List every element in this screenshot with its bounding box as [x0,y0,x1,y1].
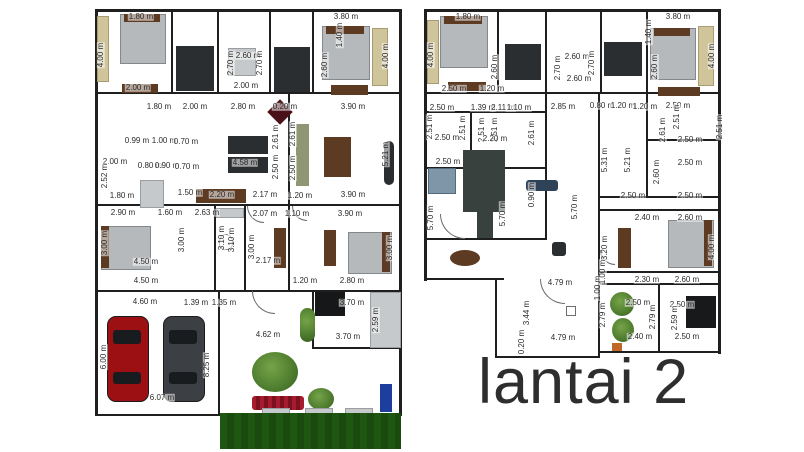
dimension-label: 2.50 m [677,136,703,144]
dimension-label: 4.00 m [708,43,716,69]
dimension-label: 4.50 m [133,277,159,285]
dimension-label: 1.40 m [336,22,344,48]
wall [545,92,547,240]
dimension-label: 2.50 m [677,159,703,167]
dimension-label: 5.70 m [571,194,579,220]
wall [658,283,660,353]
dimension-label: 3.70 m [339,299,365,307]
car-window [169,372,197,384]
car-window [169,330,197,344]
dimension-label: 4.00 m [427,42,435,68]
kitchen-appliance [228,136,268,154]
dimension-label: 1.20 m [287,192,313,200]
dimension-label: 2.20 m [482,135,508,143]
dimension-label: 2.80 m [339,277,365,285]
wall [218,290,220,416]
dimension-label: 1.60 m [157,209,183,217]
car-red [107,316,149,402]
dimension-label: 2.60 m [651,54,659,80]
dimension-label: 2.60 m [677,214,703,222]
tree [308,388,334,410]
dimension-label: 3.90 m [340,103,366,111]
wall [312,9,314,94]
dimension-label: 2.50 m [434,134,460,142]
wall [399,9,402,416]
dimension-label: 1.40 m [645,19,653,45]
dimension-label: 3.90 m [337,210,363,218]
blue-planter [380,384,392,412]
dimension-label: 2.17 m [252,191,278,199]
dimension-label: 2.51 m [673,104,681,130]
dimension-label: 4.00 m [97,42,105,68]
dimension-label: 3.90 m [340,191,366,199]
dimension-label: 2.70 m [588,50,596,76]
dimension-label: 2.50 m [272,154,280,180]
dimension-label: 3.80 m [333,13,359,21]
dimension-label: 4.00 m [382,43,390,69]
dimension-label: 3.10 m [218,225,226,251]
dresser [331,85,368,95]
dimension-label: 2.59 m [372,307,380,333]
dimension-label: 2.00 m [233,82,259,90]
tree [252,352,298,392]
floor-drain [566,306,576,316]
dimension-label: 2.50 m [435,158,461,166]
dimension-label: 2.79 m [649,304,657,330]
dimension-label: 3.00 m [386,235,394,261]
dimension-label: 2.85 m [550,103,576,111]
door-arc [252,291,275,314]
dimension-label: 2.00 m [125,84,151,92]
dimension-label: 8.25 m [203,352,211,378]
car-window [113,372,141,384]
door-arc [440,214,465,239]
dimension-label: 2.90 m [110,209,136,217]
dimension-label: 1.80 m [455,13,481,21]
dining-table [450,250,480,266]
dimension-label: 4.58 m [232,159,258,167]
bathroom-fixture [176,46,214,91]
dimension-label: 2.79 m [599,302,607,328]
dimension-label: 2.60 m [674,276,700,284]
dimension-label: 2.60 m [321,52,329,78]
wall [217,9,219,94]
dimension-label: 3.80 m [665,13,691,21]
dimension-label: 5.70 m [427,205,435,231]
dimension-label: 1.50 m [177,189,203,197]
pantry-cabinet [140,180,164,208]
dimension-label: 0.90 m [528,182,536,208]
coffee-table [324,137,351,177]
dimension-label: 2.40 m [634,214,660,222]
grass-strip [220,413,401,449]
wardrobe [324,230,336,266]
dimension-label: 2.60 m [491,54,499,80]
washing-machine [428,168,456,194]
dimension-label: 2.50 m [289,155,297,181]
wall [95,290,402,292]
wall [545,9,547,94]
dimension-label: 2.17 m [255,257,281,265]
dimension-label: 6.07 m [149,394,175,402]
dimension-label: 1.20 m [292,277,318,285]
dimension-label: 5.70 m [499,201,507,227]
dimension-label: 3.70 m [335,333,361,341]
dimension-label: 1.20 m [632,103,658,111]
dimension-label: 2.51 m [716,114,724,140]
dimension-label: 3.00 m [178,227,186,253]
wall [600,9,602,94]
car-window [113,330,141,344]
dimension-label: 1.20 m [479,85,505,93]
wall [718,9,721,354]
sofa [296,124,309,186]
dimension-label: 3.10 m [228,227,236,253]
wall [497,9,499,94]
bathroom-fixture [274,47,310,92]
dimension-label: 4.50 m [133,258,159,266]
dimension-label: 4.79 m [547,279,573,287]
dimension-label: 5.31 m [601,147,609,173]
wall [598,209,721,211]
dimension-label: 2.50 m [429,104,455,112]
dimension-label: 2.20 m [209,191,235,199]
dimension-label: 0.70 m [174,163,200,171]
dimension-label: 1.80 m [146,103,172,111]
dimension-label: 2.60 m [653,159,661,185]
dimension-label: 0.70 m [173,138,199,146]
dimension-label: 2.52 m [101,163,109,189]
wall [424,238,547,240]
dimension-label: 2.70 m [256,50,264,76]
wall [424,278,504,280]
dresser [658,87,700,96]
dimension-label: 4.62 m [255,331,281,339]
dimension-label: 4.60 m [132,298,158,306]
dimension-label: 2.00 m [182,103,208,111]
dimension-label: 2.50 m [677,192,703,200]
dimension-label: 2.07 m [252,210,278,218]
bed-headboard [326,26,364,34]
dimension-label: 2.50 m [620,192,646,200]
dimension-label: 2.61 m [659,117,667,143]
dimension-label: 2.59 m [671,305,679,331]
dimension-label: 6.00 m [100,344,108,370]
dimension-label: 1.80 m [109,192,135,200]
car-gray [163,316,205,402]
dimension-label: 5.21 m [624,147,632,173]
dimension-label: 2.61 m [272,124,280,150]
dimension-label: 1.80 m [128,13,154,21]
dimension-label: 0.99 m [124,137,150,145]
dimension-label: 2.61 m [528,120,536,146]
bathroom-fixture [505,44,541,80]
entry-plants [300,308,315,342]
dimension-label: 0.20 m [272,103,298,111]
dimension-label: 2.70 m [554,55,562,81]
floor-plan-sheet: 1.80 m4.00 m2.00 m2.60 m2.70 m2.70 m2.00… [0,0,804,452]
dimension-label: 1.10 m [506,104,532,112]
dimension-label: 1.10 m [284,210,310,218]
dimension-label: 2.80 m [230,103,256,111]
dimension-label: 4.00 m [708,234,716,260]
wall [244,204,246,292]
dimension-label: 1.00 m [599,259,607,285]
dimension-label: 2.50 m [674,333,700,341]
wall [598,271,721,273]
dimension-label: 3.44 m [523,300,531,326]
dimension-label: 2.61 m [289,121,297,147]
dimension-label: 2.50 m [441,85,467,93]
wall [269,9,271,94]
dimension-label: 2.40 m [627,333,653,341]
dimension-label: 5.21 m [382,141,390,167]
floor-title: lantai 2 [478,346,689,418]
wall [171,9,173,94]
dimension-label: 1.39 m [183,299,209,307]
sink [552,242,566,256]
dimension-label: 3.20 m [601,235,609,261]
stairs-run [477,212,493,238]
dimension-label: 4.79 m [550,334,576,342]
dimension-label: 2.70 m [227,50,235,76]
bathroom-fixture [604,42,642,76]
wardrobe [618,228,631,268]
dimension-label: 3.00 m [101,230,109,256]
dimension-label: 2.63 m [194,209,220,217]
dimension-label: 2.30 m [634,276,660,284]
dimension-label: 1.35 m [211,299,237,307]
bed-headboard [654,28,690,36]
